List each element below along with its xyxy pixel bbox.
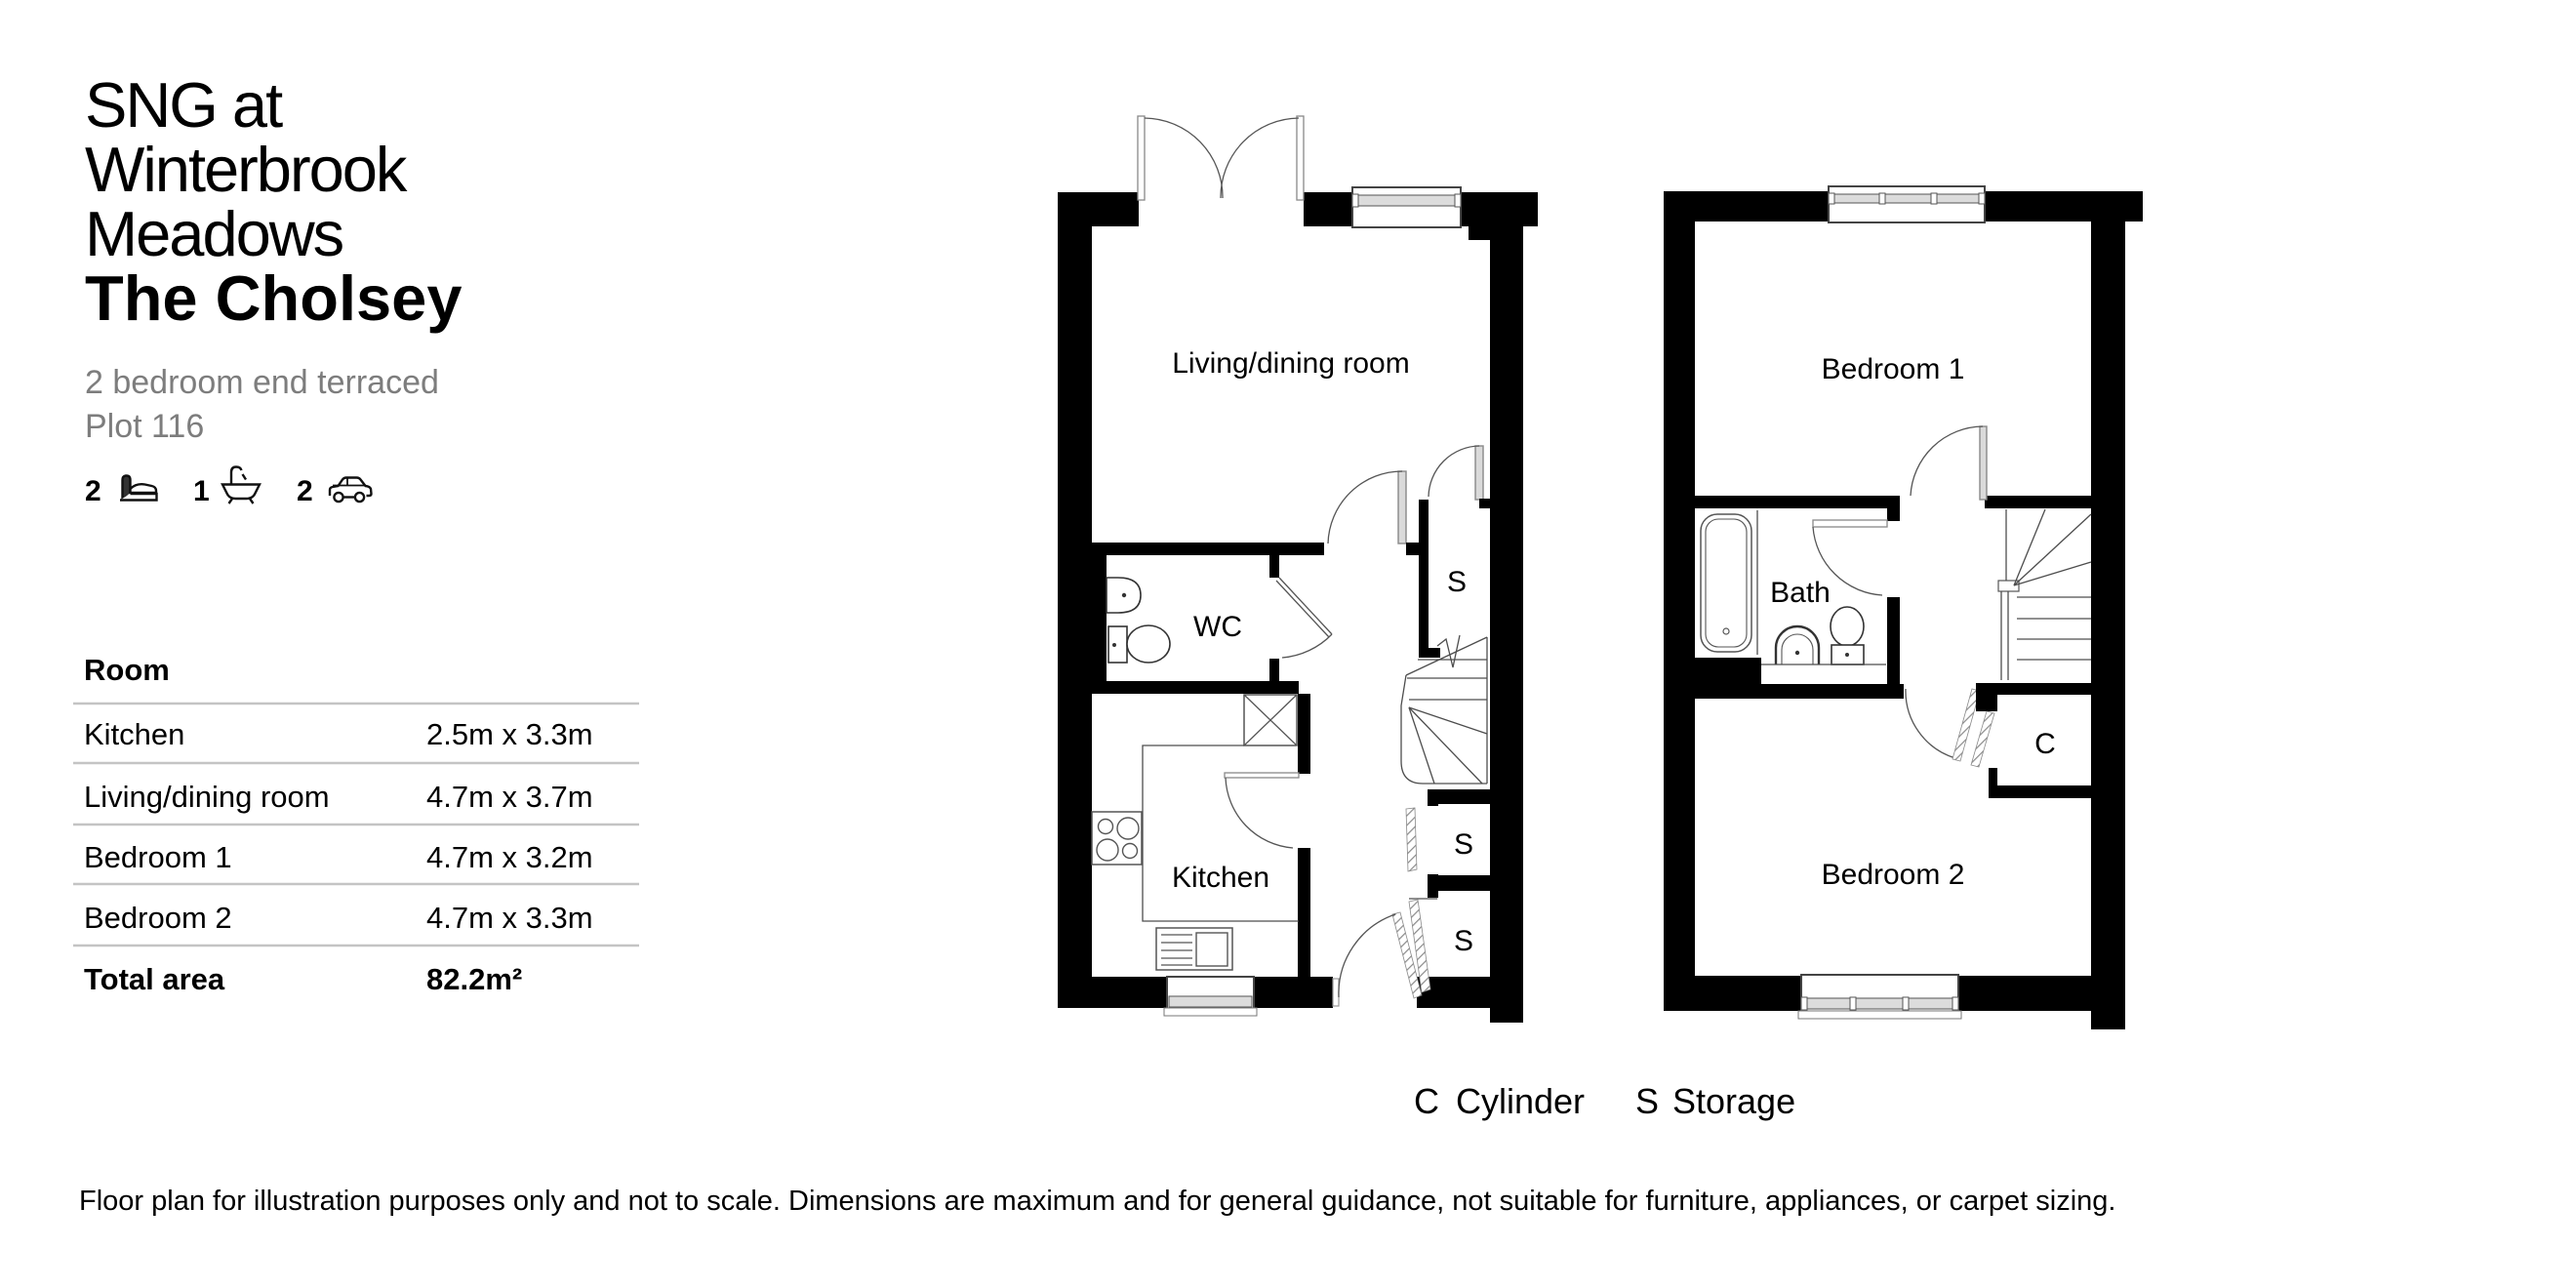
svg-text:Living/dining room: Living/dining room bbox=[84, 780, 330, 814]
svg-text:Winterbrook: Winterbrook bbox=[85, 134, 408, 205]
svg-text:The Cholsey: The Cholsey bbox=[85, 262, 462, 334]
svg-text:Kitchen: Kitchen bbox=[84, 717, 184, 751]
svg-text:4.7m x 3.2m: 4.7m x 3.2m bbox=[426, 840, 593, 874]
svg-text:82.2m²: 82.2m² bbox=[426, 962, 522, 996]
svg-text:WC: WC bbox=[1193, 611, 1242, 643]
svg-text:1: 1 bbox=[193, 475, 210, 507]
svg-text:S: S bbox=[1635, 1081, 1659, 1121]
svg-text:SNG at: SNG at bbox=[85, 69, 283, 141]
svg-text:2: 2 bbox=[85, 475, 101, 507]
svg-text:Kitchen: Kitchen bbox=[1172, 862, 1269, 894]
svg-text:Bedroom 1: Bedroom 1 bbox=[1822, 353, 1965, 385]
svg-text:2: 2 bbox=[297, 475, 313, 507]
svg-text:Bath: Bath bbox=[1770, 577, 1831, 609]
svg-text:C: C bbox=[1414, 1081, 1439, 1121]
svg-text:C: C bbox=[2034, 728, 2056, 760]
svg-text:2.5m x 3.3m: 2.5m x 3.3m bbox=[426, 717, 593, 751]
svg-text:4.7m x 3.7m: 4.7m x 3.7m bbox=[426, 780, 593, 814]
svg-text:Living/dining room: Living/dining room bbox=[1172, 347, 1409, 380]
svg-text:Bedroom 2: Bedroom 2 bbox=[1822, 859, 1965, 891]
svg-text:Room: Room bbox=[84, 653, 170, 687]
svg-text:Total area: Total area bbox=[84, 962, 225, 996]
svg-text:Bedroom 1: Bedroom 1 bbox=[84, 840, 232, 874]
svg-text:Bedroom 2: Bedroom 2 bbox=[84, 901, 232, 935]
svg-text:Meadows: Meadows bbox=[85, 198, 343, 269]
svg-text:Floor plan for illustration pu: Floor plan for illustration purposes onl… bbox=[79, 1186, 2116, 1217]
svg-text:S: S bbox=[1454, 828, 1473, 861]
svg-text:2 bedroom end terraced: 2 bedroom end terraced bbox=[85, 364, 439, 401]
svg-text:4.7m x 3.3m: 4.7m x 3.3m bbox=[426, 901, 593, 935]
svg-text:S: S bbox=[1447, 566, 1467, 598]
svg-text:S: S bbox=[1454, 925, 1473, 957]
svg-text:Cylinder: Cylinder bbox=[1456, 1081, 1585, 1121]
svg-text:Plot 116: Plot 116 bbox=[85, 408, 204, 445]
svg-text:Storage: Storage bbox=[1672, 1081, 1795, 1121]
